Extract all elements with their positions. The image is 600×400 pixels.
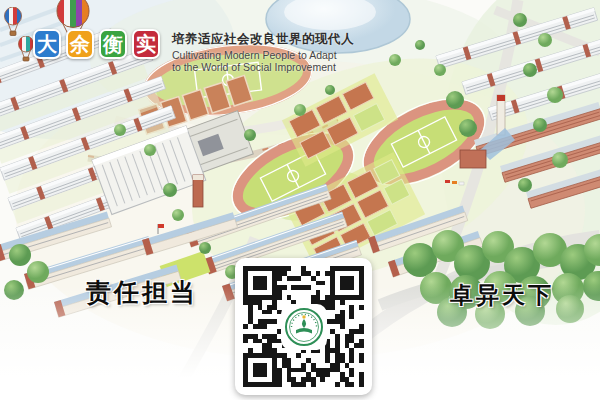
hot-air-balloon-icon <box>3 7 23 37</box>
school-name-char-1: 大 <box>33 29 61 59</box>
clock-tower <box>193 175 203 207</box>
school-promo-poster: 大 余 衡 实 培养适应社会改良世界的现代人 Cultivating Moder… <box>0 0 600 400</box>
slogan-bottom-left: 责任担当 <box>86 276 198 309</box>
school-motto: 培养适应社会改良世界的现代人 Cultivating Modern People… <box>172 31 354 73</box>
motto-chinese: 培养适应社会改良世界的现代人 <box>172 31 354 48</box>
school-emblem-icon <box>284 307 324 347</box>
qr-module <box>359 382 364 387</box>
motto-english-line1: Cultivating Modern People to Adapt <box>172 50 354 62</box>
motto-english-line2: to the World of Social Improvement <box>172 62 354 74</box>
school-name-char-4: 实 <box>132 29 160 59</box>
slogan-bottom-right: 卓异天下 <box>450 280 554 311</box>
school-name-logo: 大 余 衡 实 <box>33 29 160 59</box>
school-name-char-2: 余 <box>66 29 94 59</box>
school-name-char-3: 衡 <box>99 29 127 59</box>
qr-code <box>235 258 372 395</box>
school-emblem <box>281 304 327 350</box>
motto-english: Cultivating Modern People to Adapt to th… <box>172 50 354 73</box>
